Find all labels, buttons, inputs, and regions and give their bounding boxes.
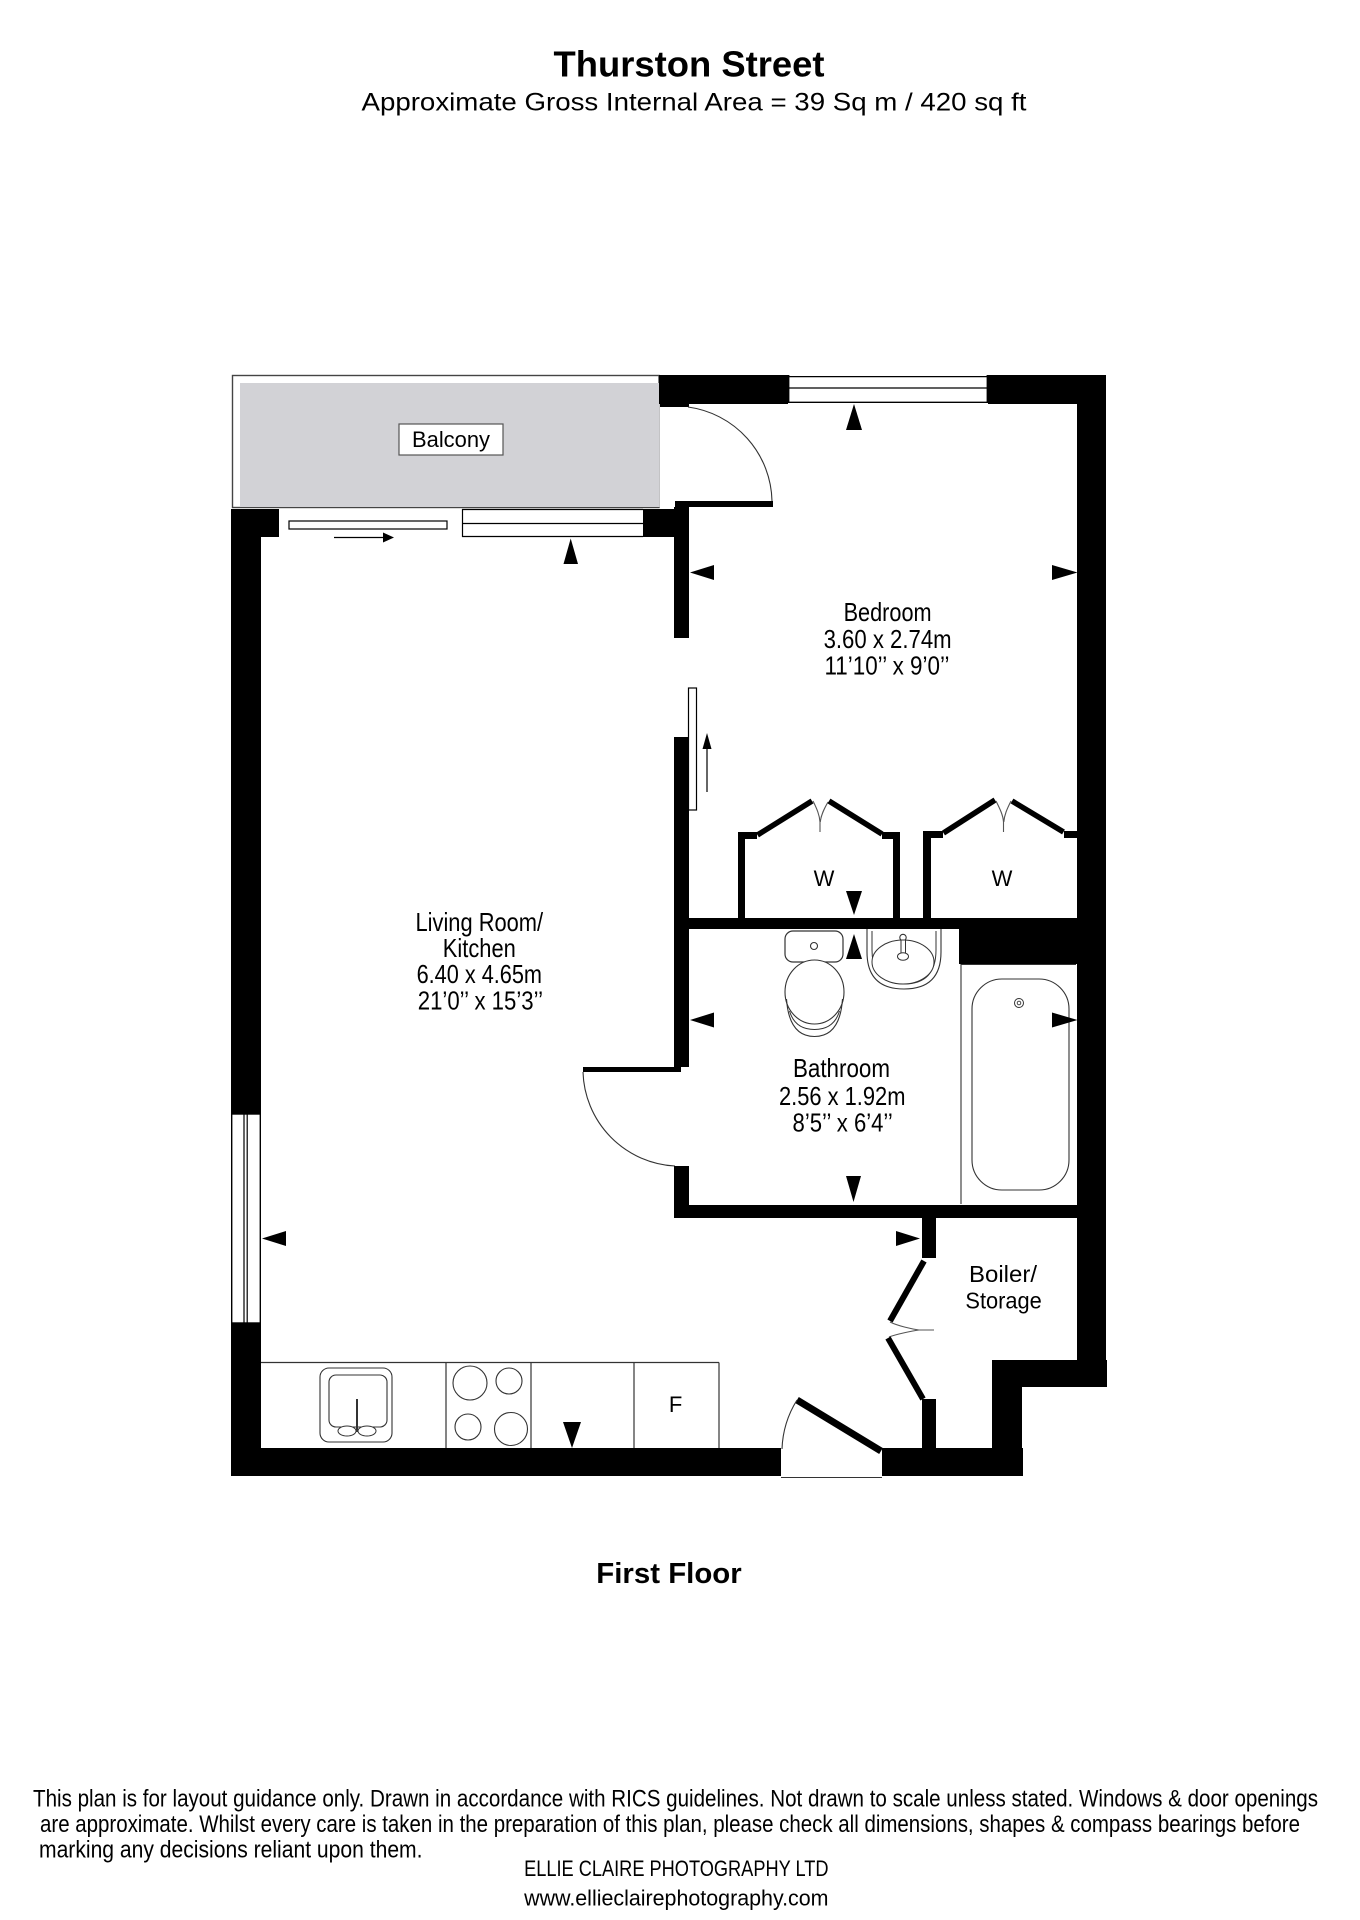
svg-text:Bathroom: Bathroom <box>793 1053 890 1083</box>
svg-text:Balcony: Balcony <box>412 427 490 452</box>
svg-text:are approximate. Whilst every: are approximate. Whilst every care is ta… <box>40 1811 1300 1838</box>
svg-text:Thurston Street: Thurston Street <box>554 44 825 85</box>
svg-text:8’5’’ x 6’4’’: 8’5’’ x 6’4’’ <box>793 1107 893 1137</box>
svg-text:Bedroom: Bedroom <box>844 597 932 627</box>
svg-text:21’0’’ x 15’3’’: 21’0’’ x 15’3’’ <box>418 985 543 1015</box>
svg-text:11’10’’ x 9’0’’: 11’10’’ x 9’0’’ <box>825 651 950 681</box>
svg-text:Storage: Storage <box>965 1288 1041 1314</box>
svg-text:ELLIE CLAIRE PHOTOGRAPHY LTD: ELLIE CLAIRE PHOTOGRAPHY LTD <box>524 1856 828 1881</box>
svg-text:F: F <box>669 1392 682 1417</box>
svg-text:Boiler/: Boiler/ <box>969 1261 1037 1287</box>
svg-text:W: W <box>992 866 1013 891</box>
svg-text:This plan is for layout guidan: This plan is for layout guidance only. D… <box>33 1786 1318 1813</box>
svg-text:www.ellieclairephotography.com: www.ellieclairephotography.com <box>523 1886 828 1911</box>
svg-text:Approximate Gross Internal Are: Approximate Gross Internal Area = 39 Sq … <box>362 89 1027 117</box>
svg-text:W: W <box>814 866 835 891</box>
svg-text:First Floor: First Floor <box>596 1558 741 1590</box>
svg-text:marking any decisions reliant: marking any decisions reliant upon them. <box>39 1837 423 1864</box>
svg-text:3.60 x 2.74m: 3.60 x 2.74m <box>824 624 952 654</box>
